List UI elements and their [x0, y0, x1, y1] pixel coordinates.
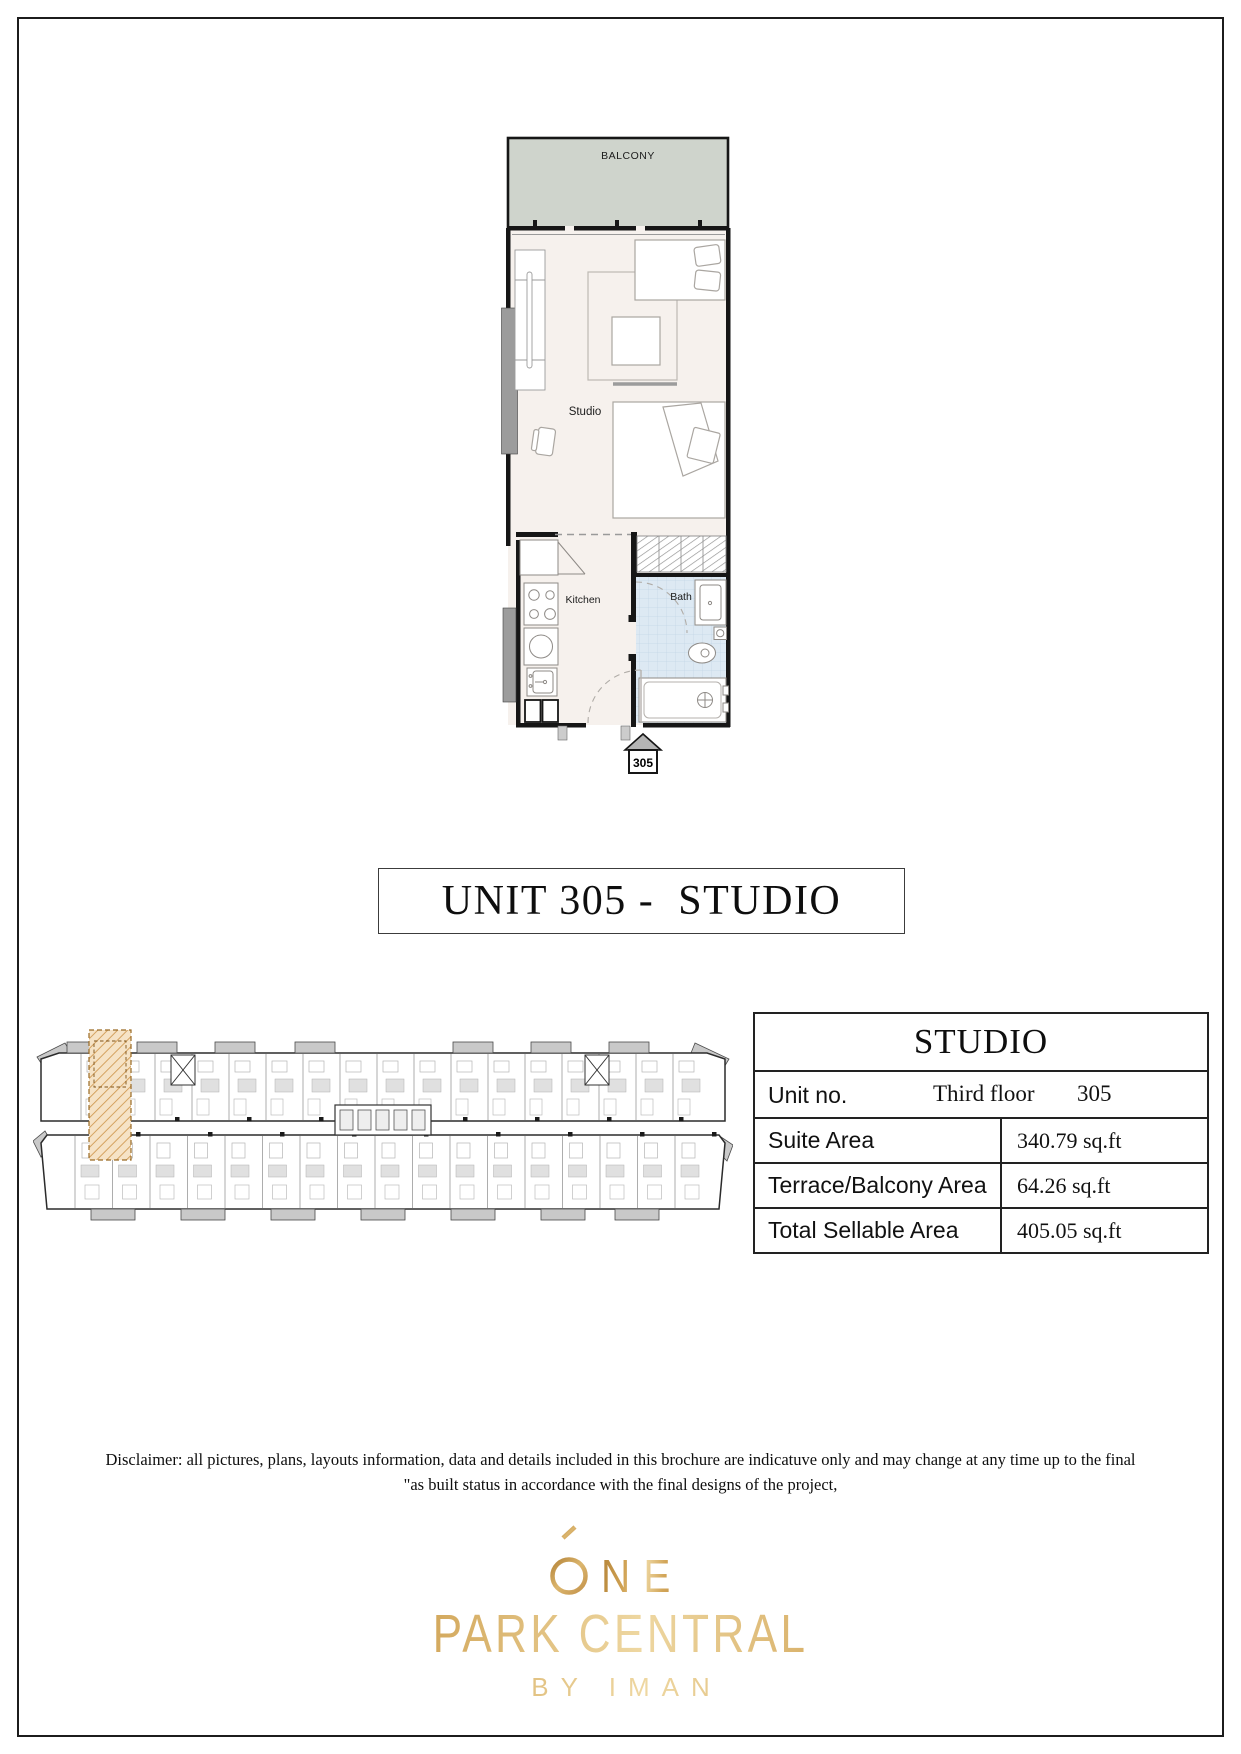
kitchen-label: Kitchen	[565, 594, 600, 606]
unit-info-table: STUDIO Unit no. Third floor 305 Suite Ar…	[753, 1012, 1209, 1254]
logo-one-letters: NE	[601, 1556, 684, 1596]
table-row-total-area: Total Sellable Area 405.05 sq.ft	[755, 1207, 1207, 1252]
balcony-label: BALCONY	[601, 150, 655, 162]
lower-cabinet	[525, 700, 541, 722]
pillow	[694, 244, 721, 266]
elevator-core	[335, 1105, 431, 1135]
pillow	[694, 270, 721, 292]
unit-number-value: 305	[1077, 1081, 1112, 1107]
highlighted-unit-305	[89, 1030, 131, 1160]
bathroom	[636, 536, 729, 723]
disclaimer: Disclaimer: all pictures, plans, layouts…	[30, 1447, 1211, 1497]
logo-park-central: PARK CENTRAL	[112, 1612, 1130, 1656]
bath-label: Bath	[670, 591, 692, 603]
disclaimer-line-2: "as built status in accordance with the …	[30, 1472, 1211, 1497]
unit-no-label: Unit no.	[768, 1082, 847, 1109]
total-area-value: 405.05 sq.ft	[1000, 1209, 1207, 1252]
brand-logo: NE PARK CENTRAL BY IMAN	[0, 1522, 1241, 1698]
unit-floor-value: Third floor	[933, 1081, 1035, 1107]
logo-line-one: NE	[0, 1522, 1241, 1596]
studio-label: Studio	[569, 406, 602, 418]
unit-title-box: UNIT 305 - STUDIO	[378, 868, 905, 934]
suite-area-label: Suite Area	[755, 1119, 1000, 1162]
table-row-terrace-area: Terrace/Balcony Area 64.26 sq.ft	[755, 1162, 1207, 1207]
one-key-o-icon	[547, 1522, 593, 1596]
building-overview-plan	[33, 1025, 733, 1221]
table-row-suite-area: Suite Area 340.79 sq.ft	[755, 1117, 1207, 1162]
terrace-area-label: Terrace/Balcony Area	[755, 1164, 1000, 1207]
cabinet	[520, 540, 558, 575]
unit-marker-number: 305	[633, 756, 653, 770]
disclaimer-line-1: Disclaimer: all pictures, plans, layouts…	[30, 1447, 1211, 1472]
unit-floor-plan: BALCONY Studio Kitchen Bath 305	[495, 130, 745, 790]
terrace-area-value: 64.26 sq.ft	[1000, 1164, 1207, 1207]
logo-by-iman: BY IMAN	[0, 1676, 1241, 1698]
total-area-label: Total Sellable Area	[755, 1209, 1000, 1252]
unit-number-row: Unit no. Third floor 305	[755, 1070, 1207, 1117]
suite-area-value: 340.79 sq.ft	[1000, 1119, 1207, 1162]
wardrobe	[637, 536, 726, 572]
unit-entry-marker: 305	[625, 734, 661, 773]
lower-cabinet	[543, 700, 559, 722]
unit-title: UNIT 305 - STUDIO	[442, 877, 842, 925]
table	[612, 317, 660, 365]
info-table-title: STUDIO	[755, 1014, 1207, 1070]
closet	[515, 250, 545, 390]
